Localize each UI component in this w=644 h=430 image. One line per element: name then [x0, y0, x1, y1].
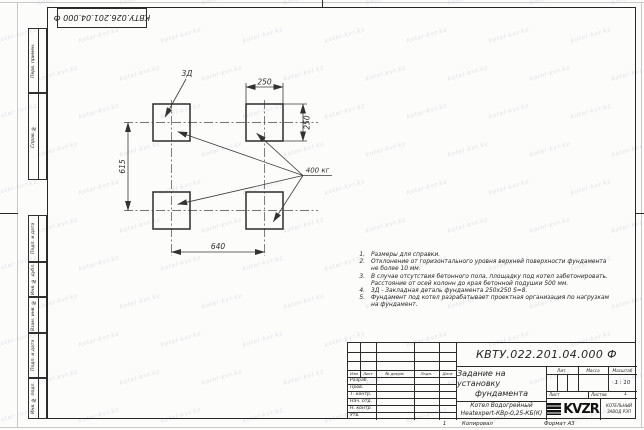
trim-line-bottom [0, 427, 644, 428]
foundation-plan-drawing: 3Д 250 250 615 640 400 кг [100, 60, 345, 272]
watermark-text: kotel-kvr.kz [447, 0, 489, 7]
dim-250-top: 250 [257, 78, 272, 87]
role-nach-otd: Нач. отд. [348, 398, 378, 405]
product-name: Котел Водогрейный Heatexpert-КВр-0,25-КБ… [457, 401, 546, 420]
rev-col-izm: Изм [348, 370, 360, 377]
side-label: Подп. и дата [31, 340, 36, 371]
watermark-text: kotel-kvr.kz [283, 0, 325, 7]
note-number: 3. [357, 274, 365, 288]
logo-caption-line2: ЗАВОД РЭП [607, 409, 631, 415]
dim-640-bottom: 640 [211, 242, 226, 251]
watermark-text: kotel-kvr.kz [365, 0, 407, 7]
fold-tick-top [322, 0, 323, 8]
format-label: Формат А3 [544, 421, 575, 427]
kvzr-logo-text: KVZR [563, 402, 599, 417]
note-item: 2.Отклонение от горизонтального уровня в… [357, 259, 615, 273]
role-razrab: Разраб. [348, 377, 378, 384]
note-number: 2. [357, 259, 365, 273]
product-line1: Котел Водогрейный [470, 403, 532, 411]
side-cell-inv-podl: Инв. № подл. [28, 378, 47, 419]
watermark-text: kotel-kvr.kz [37, 0, 79, 7]
load-label-400kg: 400 кг [306, 167, 330, 175]
kvzr-logo: KVZR [546, 398, 600, 420]
role-utv: Утв. [348, 412, 378, 419]
doc-title: Задание на установку фундамента [457, 366, 546, 401]
note-text: В случае отсутствия бетонного пола, площ… [371, 274, 615, 288]
side-label: Справ. № [31, 125, 36, 148]
rev-col-list: Лист [360, 370, 376, 377]
side-cell-sprav-n: Справ. № [28, 93, 47, 180]
role-t-kontr: Т. контр. [348, 391, 378, 398]
embed-detail-label: 3Д [182, 69, 193, 78]
note-item: 5.Фундамент под котел разрабатывает прое… [357, 295, 615, 309]
note-number: 1. [357, 252, 365, 259]
doc-number: КВТУ.022.201.04.000 Ф [456, 343, 637, 366]
fold-tick-right [636, 213, 644, 214]
watermark-text: kotel-kvr.kz [119, 0, 161, 7]
lit-label: Лит. [546, 366, 578, 374]
note-text: Отклонение от горизонтального уровня вер… [371, 259, 615, 273]
logo-caption: КОТЕЛЬНЫЙ ЗАВОД РЭП [601, 398, 637, 420]
notes-block: 1.Размеры для справки. 2.Отклонение от г… [357, 252, 615, 310]
doc-title-line1: Задание на установку [457, 369, 546, 389]
title-block: Изм Лист № докум. Подп. Дата Разраб. Про… [347, 342, 636, 419]
side-label: Перв. примен. [31, 43, 36, 78]
scale-value: 1 : 10 [608, 374, 637, 391]
watermark-text: kotel-kvr.kz [529, 0, 571, 7]
scale-label: Масштаб [608, 366, 637, 374]
note-number: 4. [357, 288, 365, 295]
sheets-value: 1 [616, 391, 635, 398]
note-item: 3.В случае отсутствия бетонного пола, пл… [357, 274, 615, 288]
rev-col-podp: Подп. [414, 370, 439, 377]
trim-line-left [17, 2, 18, 428]
sheets-label: Листов [588, 391, 619, 398]
watermark-text: kotel-kvr.kz [611, 0, 644, 7]
note-text: Фундамент под котел разрабатывает проект… [371, 295, 615, 309]
side-label: Взам. инв. № [31, 299, 36, 330]
doc-title-line2: фундамента [475, 389, 528, 399]
sheet-label: Лист [546, 391, 591, 398]
side-cell-vzam-inv: Взам. инв. № [28, 297, 47, 333]
mass-label: Масса [578, 366, 608, 374]
note-item: 1.Размеры для справки. [357, 252, 615, 259]
side-cell-podp-data-2: Подп. и дата [28, 333, 47, 378]
drawing-sheet: kotel-kvr.kzkotel-kvr.kzkotel-kvr.kzkote… [0, 0, 644, 430]
top-stamp-box: КВТУ.026.201.04.000 Ф [57, 8, 147, 28]
watermark-text: kotel-kvr.kz [0, 178, 38, 196]
note-text: 3Д - Закладная деталь фундамента 250х250… [371, 288, 527, 295]
side-cell-podp-data-1: Подп. и дата [28, 215, 47, 262]
rev-col-docnum: № докум. [376, 370, 414, 377]
side-label: Инв. № подл. [31, 383, 36, 415]
fold-tick-left [0, 213, 18, 214]
note-number: 5. [357, 295, 365, 309]
copied-label: Копировал [462, 421, 493, 427]
trim-line-right [641, 2, 642, 428]
role-prov: Пров. [348, 384, 378, 391]
note-text: Размеры для справки. [371, 252, 440, 259]
side-cell-perv-primen: Перв. примен. [28, 28, 47, 93]
dim-250-right: 250 [303, 115, 312, 130]
side-label: Инв. № дубл. [31, 264, 36, 296]
product-line2: Heatexpert-КВр-0,25-КБ(К) [461, 411, 543, 419]
role-n-kontr: Н. контр. [348, 405, 378, 412]
note-item: 4.3Д - Закладная деталь фундамента 250х2… [357, 288, 615, 295]
side-label: Подп. и дата [31, 223, 36, 254]
top-stamp-number: КВТУ.026.201.04.000 Ф [54, 14, 151, 23]
kvzr-logo-icon [547, 403, 561, 415]
side-cell-inv-dubl: Инв. № дубл. [28, 262, 47, 297]
watermark-text: kotel-kvr.kz [201, 0, 243, 7]
zone-number: 1 [443, 421, 446, 427]
rev-col-data: Дата [439, 370, 456, 377]
dim-615-left: 615 [118, 159, 127, 174]
